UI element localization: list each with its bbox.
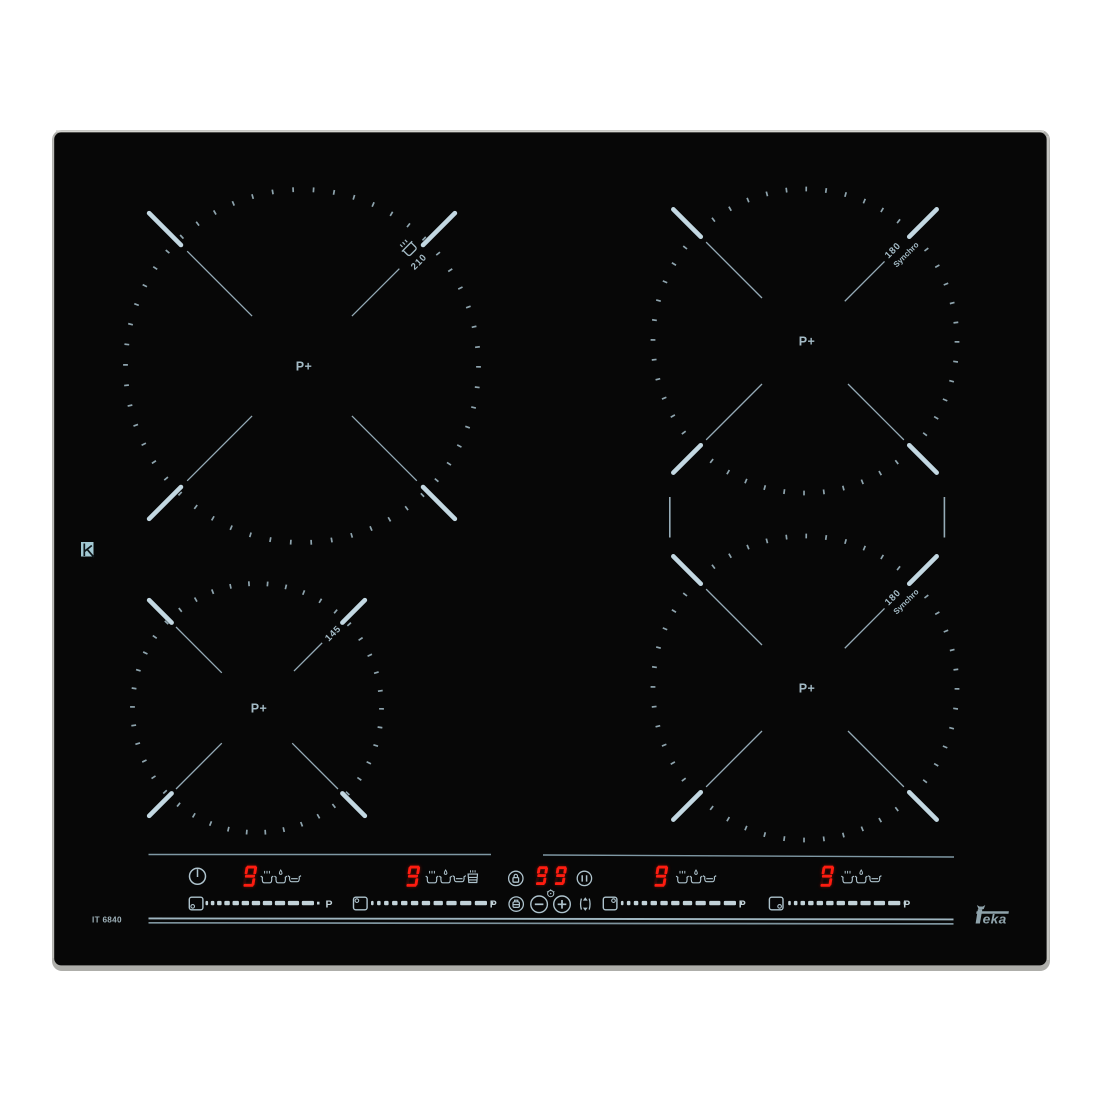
svg-text:P+: P+	[799, 335, 815, 349]
svg-text:P+: P+	[799, 682, 815, 696]
svg-text:P: P	[739, 898, 746, 910]
svg-text:P+: P+	[251, 702, 267, 716]
svg-text:P: P	[903, 898, 910, 910]
svg-text:eka: eka	[983, 913, 1007, 927]
svg-text:IT 6840: IT 6840	[92, 915, 122, 924]
svg-text:P: P	[326, 898, 333, 910]
svg-text:P+: P+	[296, 360, 312, 374]
svg-text:P: P	[490, 898, 497, 910]
